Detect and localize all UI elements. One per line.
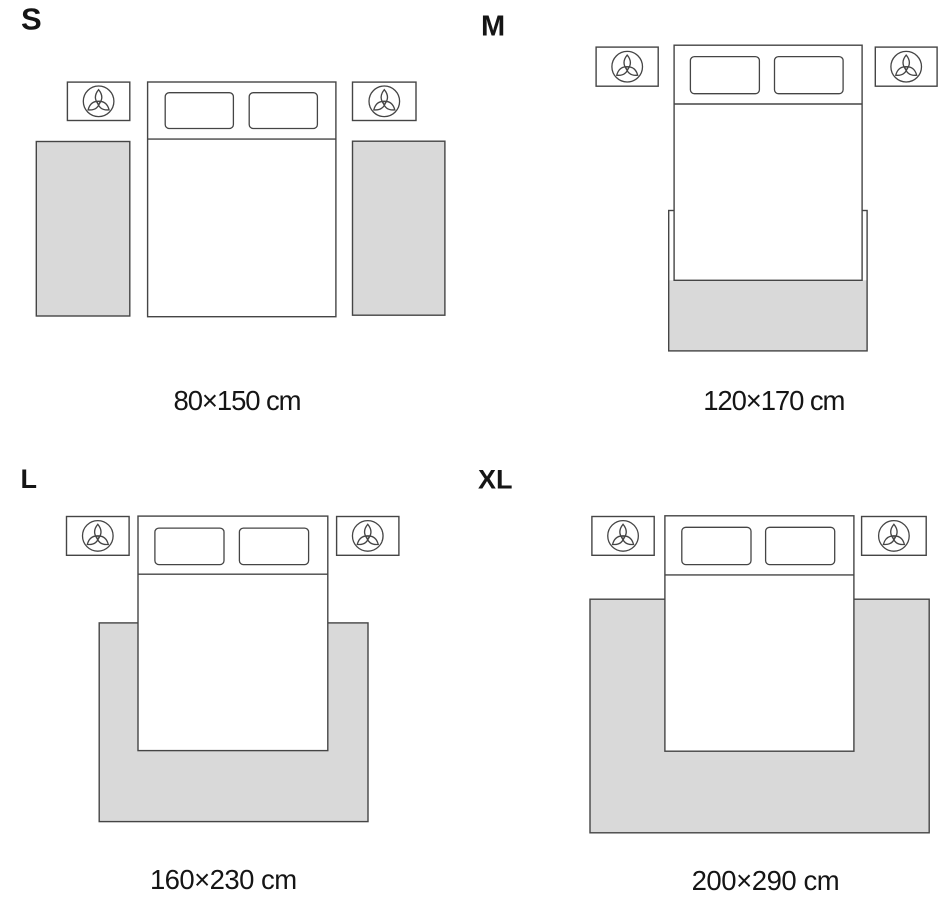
svg-text:160×230 cm: 160×230 cm	[150, 864, 297, 895]
svg-text:XL: XL	[478, 465, 513, 495]
svg-text:S: S	[21, 2, 42, 37]
svg-text:L: L	[21, 464, 38, 494]
svg-text:80×150 cm: 80×150 cm	[174, 385, 301, 416]
svg-text:M: M	[481, 11, 505, 43]
svg-text:120×170 cm: 120×170 cm	[703, 385, 844, 416]
svg-text:200×290 cm: 200×290 cm	[692, 865, 840, 896]
